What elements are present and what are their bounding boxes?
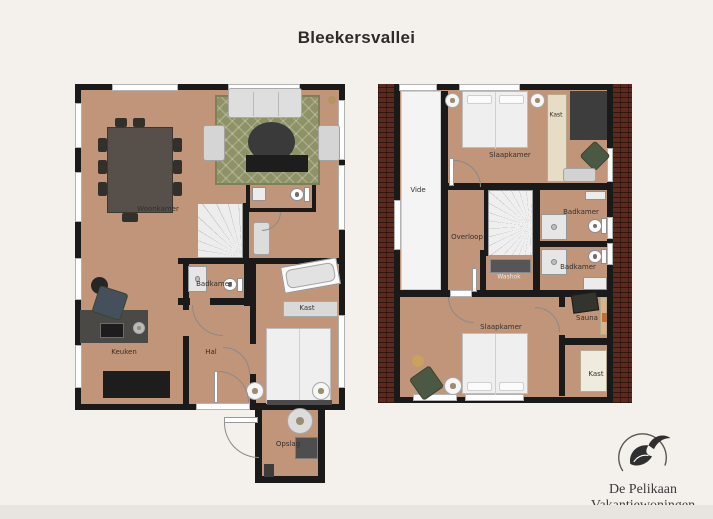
window [394,200,401,250]
door-opening [190,298,210,305]
wall [441,91,448,290]
room-label: Woonkamer [137,205,179,213]
kitchen-sink [133,322,145,334]
nightstand [444,377,462,395]
room-label: Kast [588,370,603,378]
window [465,394,524,401]
cooktop [100,323,124,338]
door-arc [224,423,259,458]
room-label: Badkamer [563,208,599,216]
pillow [499,382,524,391]
sofa [228,88,302,118]
storage-item [264,464,274,477]
window [607,217,613,239]
page-title: Bleekersvallei [0,28,713,48]
window [338,315,345,388]
toilet [290,186,310,204]
room-label: Keuken [111,348,137,356]
bed-split [495,334,496,395]
washer-dryer [490,259,531,273]
bed-split [299,329,300,405]
decor-dot [328,96,336,104]
boiler [287,408,313,434]
room-label: Overloop [451,233,483,241]
dining-table [107,127,173,213]
window [75,345,82,388]
door-opening [250,344,256,374]
bed [462,333,528,394]
room-label: Opslag [276,440,300,448]
door-opening [183,310,189,336]
staircase [488,190,533,256]
pillow [467,95,492,104]
staircase [197,203,243,258]
shower [541,214,567,240]
window [75,172,82,222]
room-label: Badkamer [560,263,596,271]
wall [178,298,250,305]
sofa-cushion-line [278,92,279,116]
toilet-tank [304,187,310,202]
dining-chair [98,160,107,174]
wc-sink [252,187,266,201]
dining-chair [133,118,145,127]
room-label: Slaapkamer [489,151,531,159]
window [459,84,520,91]
company-logo: De Pelikaan Vakantiewoningen Comfortabel… [573,418,713,519]
room-label: Sauna [576,314,598,322]
bed [462,91,528,148]
decor-dot [412,355,424,367]
armchair [318,125,340,161]
dining-chair [98,138,107,152]
first-floor-plan: Vide Slaapkamer Kast Overloop Washok Bad… [378,81,633,403]
logo-name-line1: De Pelikaan [573,482,713,498]
door-leaf [472,268,477,292]
room-label: Badkamer [196,280,232,288]
shower [541,249,567,275]
roof-brick-right [612,84,632,403]
sauna-stove [571,291,599,313]
window [607,243,613,265]
pillow [467,382,492,391]
room-label: Slaapkamer [480,323,522,331]
sofa-cushion-line [253,92,254,116]
room-label: Vide [410,186,425,194]
bathroom-sink [585,191,606,200]
window [399,84,437,91]
dining-chair [122,213,138,222]
dining-chair [115,118,127,127]
toilet-bowl [588,250,602,263]
door-opening [450,290,472,297]
dining-chair [173,182,182,196]
dining-chair [173,138,182,152]
toilet-tank [237,278,243,292]
toilet [588,216,607,236]
ground-floor-plan: Woonkamer Badkamer Kast Hal Keuken Opsla… [75,84,345,484]
room-label: Hal [205,348,217,356]
wall [394,290,448,297]
media-cabinet [246,155,308,172]
dark-area [570,91,607,140]
shower [188,266,207,292]
nightstand [312,382,330,400]
nightstand [445,93,460,108]
wall [540,241,612,247]
floorplan-page: Bleekersvallei [0,0,713,519]
wall [559,338,612,345]
roof-brick-left [378,84,395,403]
wall [480,250,486,297]
dresser [563,168,596,182]
room-label: Washok [497,274,520,281]
window [75,103,82,148]
room-label: Kast [299,304,314,312]
room-label: Kast [550,112,563,119]
sauna-door-handle [602,313,607,322]
window [112,84,178,91]
armchair [203,125,225,161]
window [75,258,82,300]
wall [533,183,540,297]
pillow [499,95,524,104]
bottom-edge-band [0,505,713,519]
toilet-bowl [588,219,602,233]
window [338,165,345,230]
pelican-icon [593,418,693,482]
headboard [267,400,332,405]
kitchen-bench [103,371,170,398]
bathroom-sink [583,277,607,290]
toilet-bowl [290,188,304,201]
bed-split [495,92,496,149]
dining-chair [173,160,182,174]
nightstand [530,93,545,108]
dining-chair [98,182,107,196]
front-door-opening [196,403,250,410]
